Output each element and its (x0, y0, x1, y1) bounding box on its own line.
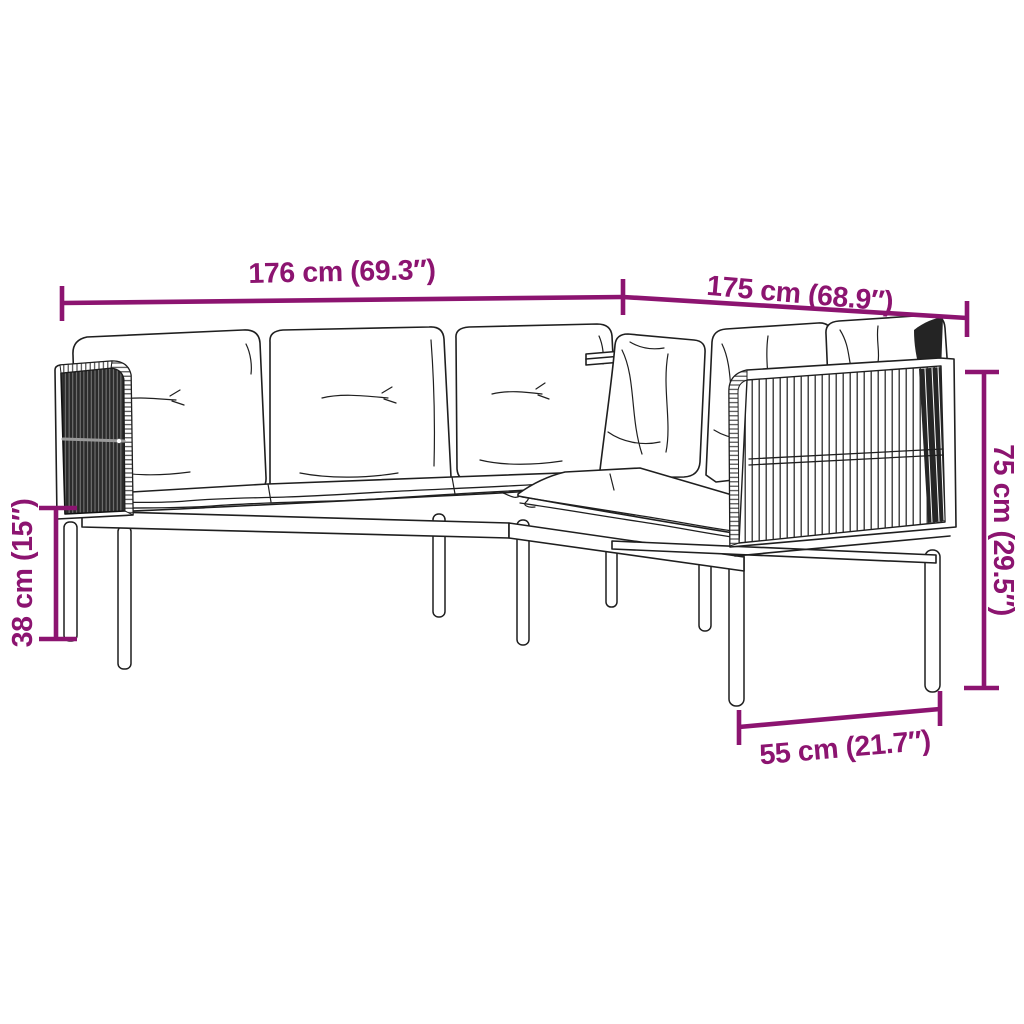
sofa-sketch (55, 315, 956, 706)
back-cushion (270, 327, 451, 496)
left-panel-midrail (63, 439, 124, 441)
leg (64, 522, 77, 641)
sofa-legs (64, 514, 940, 706)
dimension-seat-depth: 55 cm (21.7″) (739, 691, 940, 771)
back-cushion (456, 324, 618, 481)
dimension-label-seat-depth: 55 cm (21.7″) (758, 725, 932, 772)
back-cushion (600, 334, 705, 478)
dimension-label-width-right: 175 cm (68.9″) (705, 270, 894, 318)
leg (925, 550, 940, 692)
left-panel-dot (117, 439, 121, 443)
dimension-label-total-height: 75 cm (29.5″) (987, 444, 1019, 616)
front-rail-left (82, 511, 509, 538)
left-arm-panel (55, 361, 133, 519)
back-cushions-left (73, 324, 618, 499)
diagram-canvas: 176 cm (69.3″) 175 cm (68.9″) 75 cm (29.… (0, 0, 1024, 1024)
dimension-total-height: 75 cm (29.5″) (964, 372, 1019, 688)
leg (118, 526, 131, 669)
right-arm-panel (729, 358, 956, 556)
dimension-label-width-left: 176 cm (69.3″) (248, 254, 436, 290)
dimension-label-seat-height: 38 cm (15″) (7, 499, 39, 648)
corner-sofa-dimension-diagram: 176 cm (69.3″) 175 cm (68.9″) 75 cm (29.… (0, 0, 1024, 1024)
dimension-width-left: 176 cm (69.3″) (62, 254, 623, 321)
